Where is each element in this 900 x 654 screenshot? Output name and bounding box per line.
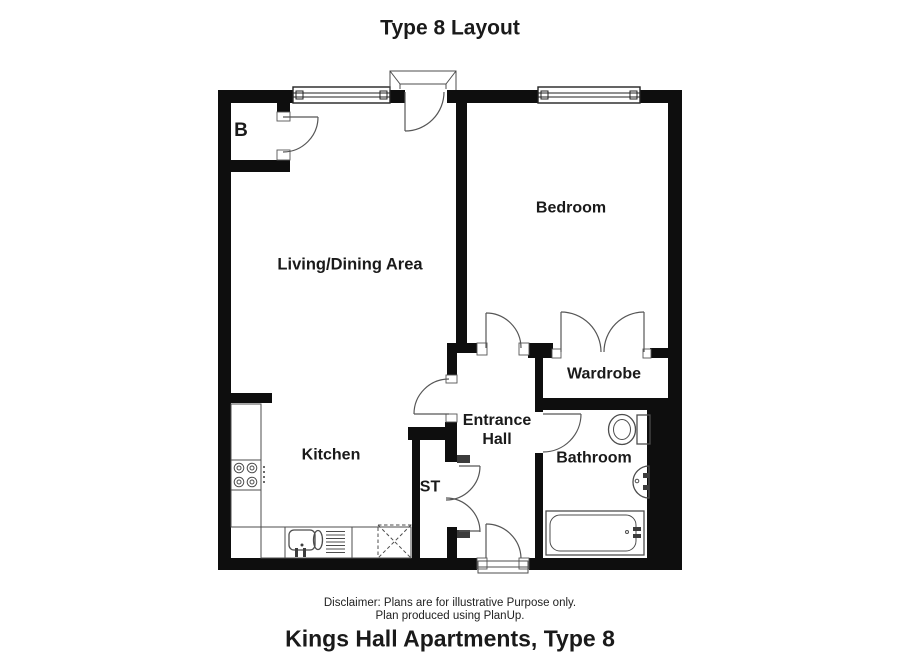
wall-bathroom-left xyxy=(535,350,543,558)
wall-wardrobe-right-stub xyxy=(650,348,668,358)
wall-bathroom-top xyxy=(535,398,647,410)
wardrobe-door-right xyxy=(604,312,644,352)
jamb-wardrobe-left xyxy=(552,349,561,358)
wall-hall-left-lower xyxy=(447,527,457,558)
room-label-wardrobe: Wardrobe xyxy=(567,366,641,385)
wall-left xyxy=(218,90,231,570)
room-label-entrance-hall: Entrance Hall xyxy=(447,412,547,450)
wall-b-bottom xyxy=(231,160,290,172)
st-cupboard-doors xyxy=(446,466,480,532)
balcony-door-recess xyxy=(390,71,456,90)
wall-b-right xyxy=(277,103,290,113)
bedroom-door xyxy=(486,313,521,348)
hob xyxy=(234,463,265,487)
wall-right-bathroom-fill xyxy=(647,398,682,558)
appliance-space xyxy=(378,525,411,558)
bathroom-fixtures xyxy=(546,415,650,556)
window-living xyxy=(293,87,390,103)
floorplan-drawing xyxy=(0,0,900,654)
st-door-hinge-top xyxy=(457,455,470,463)
floorplan-page: Type 8 Layout B Living/Dining Area Bedro… xyxy=(0,0,900,654)
room-label-storage: ST xyxy=(420,479,440,498)
window-bedroom xyxy=(538,87,640,103)
wall-bottom xyxy=(218,558,682,570)
bathroom-door xyxy=(543,414,581,452)
room-label-bathroom: Bathroom xyxy=(556,450,632,469)
opening-balcony-door xyxy=(405,88,447,104)
wall-living-bedroom-divider xyxy=(456,90,467,343)
drainer-lines xyxy=(326,532,345,553)
bathtub xyxy=(546,511,644,555)
disclaimer-line2: Plan produced using PlanUp. xyxy=(376,610,525,622)
wall-kitchen-stub xyxy=(231,393,272,403)
room-label-kitchen: Kitchen xyxy=(302,447,361,466)
washbasin xyxy=(633,466,649,498)
kitchen-fixtures xyxy=(231,404,411,558)
hall-living-door xyxy=(414,379,449,414)
plan-caption: Kings Hall Apartments, Type 8 xyxy=(285,625,615,652)
wall-right-upper xyxy=(668,90,682,398)
disclaimer-line1: Disclaimer: Plans are for illustrative P… xyxy=(324,597,576,609)
room-label-b-store: B xyxy=(234,120,248,142)
wall-openings xyxy=(405,88,543,571)
plan-title: Type 8 Layout xyxy=(380,17,520,42)
toilet xyxy=(609,415,651,445)
room-label-bedroom: Bedroom xyxy=(536,200,606,219)
wall-hall-left-upper xyxy=(447,343,457,375)
kitchen-sink xyxy=(285,527,352,558)
b-store-door xyxy=(283,117,318,152)
wardrobe-door-left xyxy=(561,312,601,352)
room-label-living-dining: Living/Dining Area xyxy=(275,255,425,274)
front-door xyxy=(486,524,521,558)
